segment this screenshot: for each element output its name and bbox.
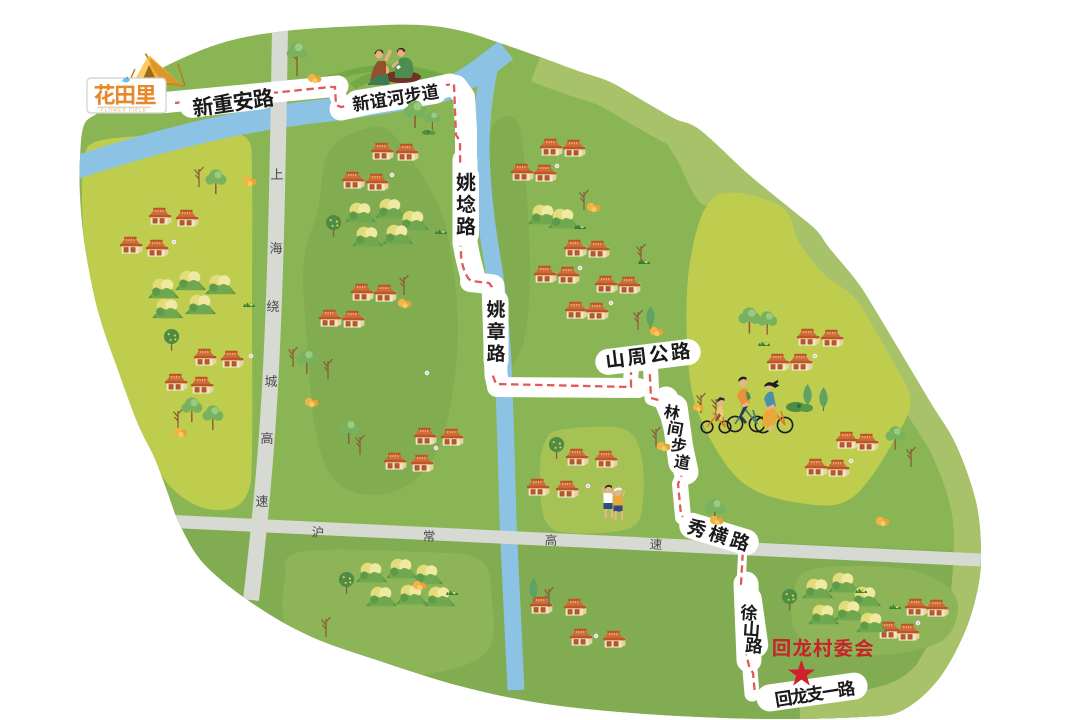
svg-text:FLOWER FIELD: FLOWER FIELD: [101, 108, 147, 113]
